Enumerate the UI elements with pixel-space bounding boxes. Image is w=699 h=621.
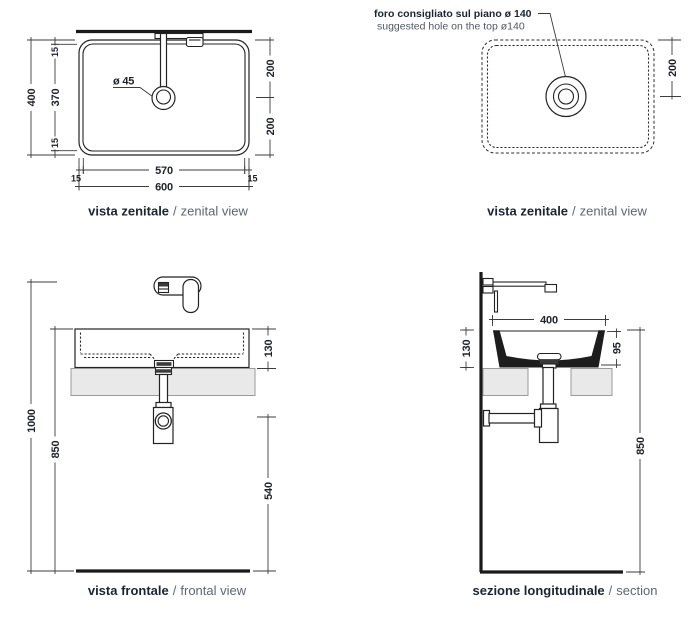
trap-flange: [541, 404, 557, 409]
dim-label: 200: [265, 118, 277, 136]
dim-inner-depth: 95: [611, 329, 624, 369]
dim-basin-width-section: 400: [489, 313, 609, 327]
pipe-coupling: [535, 410, 542, 428]
drain-diameter-label: ø 45: [113, 76, 134, 88]
caption-section: sezione longitudinale/section: [472, 583, 657, 598]
dim-label: 130: [461, 340, 473, 358]
dim-rim-height-section: 850: [634, 327, 647, 575]
faucet-spout: [493, 282, 546, 286]
dim-label: 400: [26, 89, 38, 107]
dim-label: 15: [50, 138, 60, 148]
dim-label: 200: [667, 59, 679, 77]
note-line1: foro consigliato sul piano ø 140: [374, 8, 532, 20]
dim-label: 400: [540, 314, 558, 326]
view-zenital-right: foro consigliato sul piano ø 140 suggest…: [374, 8, 681, 219]
dim-label: 15: [50, 47, 60, 57]
dim-label: 850: [50, 441, 62, 459]
dim-label: 570: [155, 165, 173, 177]
dim-label: 130: [263, 340, 275, 358]
trap-body: [540, 409, 559, 443]
dim-inner-height: 15 370 15: [49, 37, 62, 158]
view-section: 400: [460, 272, 658, 598]
faucet-bracket-top: [483, 279, 493, 286]
note-line2: suggested hole on the top ø140: [377, 21, 525, 33]
drain-pipe: [160, 375, 168, 404]
dim-label: 15: [247, 174, 257, 184]
note-leader-line: [538, 14, 566, 80]
dim-faucet-height: 1000: [24, 279, 38, 574]
caption-zenital-left: vista zenitale/zenital view: [88, 204, 248, 219]
faucet-lever: [495, 291, 498, 312]
dim-label: 540: [263, 482, 275, 500]
faucet-nozzle: [545, 285, 557, 293]
outlet-pipe: [489, 414, 535, 424]
counter-section-left: [483, 369, 528, 396]
dim-label: 200: [265, 60, 277, 78]
suggested-hole: [546, 77, 586, 117]
faucet-front-view: [154, 277, 201, 313]
dim-basin-height-section: 130: [460, 327, 473, 371]
faucet-section-view: [483, 279, 557, 313]
drain-pipe: [543, 368, 554, 405]
faucet-bracket-bottom: [483, 287, 493, 294]
hole-outer-circle: [546, 77, 586, 117]
faucet-handle: [187, 38, 204, 47]
trap-flange: [156, 403, 171, 408]
dim-hole-offset: 200: [658, 37, 681, 100]
counter-section-right: [571, 369, 612, 396]
dim-label: 15: [71, 174, 81, 184]
dim-label: 850: [635, 437, 647, 455]
view-zenital-left: 400 15 370 15 200 200: [25, 32, 277, 219]
dim-overall-height: 400: [25, 37, 38, 158]
caption-zenital-right: vista zenitale/zenital view: [487, 204, 647, 219]
drain-cap: [538, 354, 562, 360]
view-frontal: 1000 850 130 540 vista frontale/frontal: [24, 277, 276, 598]
dim-overall-width: 600: [75, 180, 253, 193]
caption-frontal: vista frontale/frontal view: [88, 583, 247, 598]
dim-label: 370: [50, 89, 62, 107]
drawing-canvas: 400 15 370 15 200 200: [0, 0, 699, 621]
drain-top-view: [152, 87, 175, 110]
drain-inner-circle: [157, 90, 171, 104]
dim-label: 95: [611, 342, 623, 354]
dim-rim-height: 850: [49, 326, 62, 574]
dim-label: 600: [155, 181, 173, 193]
dim-basin-height: 130: [262, 326, 275, 372]
dim-drain-height: 540: [262, 414, 275, 574]
dim-label: 1000: [26, 409, 38, 433]
technical-drawing-sheet: 400 15 370 15 200 200: [0, 0, 699, 621]
faucet-handle: [183, 280, 199, 313]
